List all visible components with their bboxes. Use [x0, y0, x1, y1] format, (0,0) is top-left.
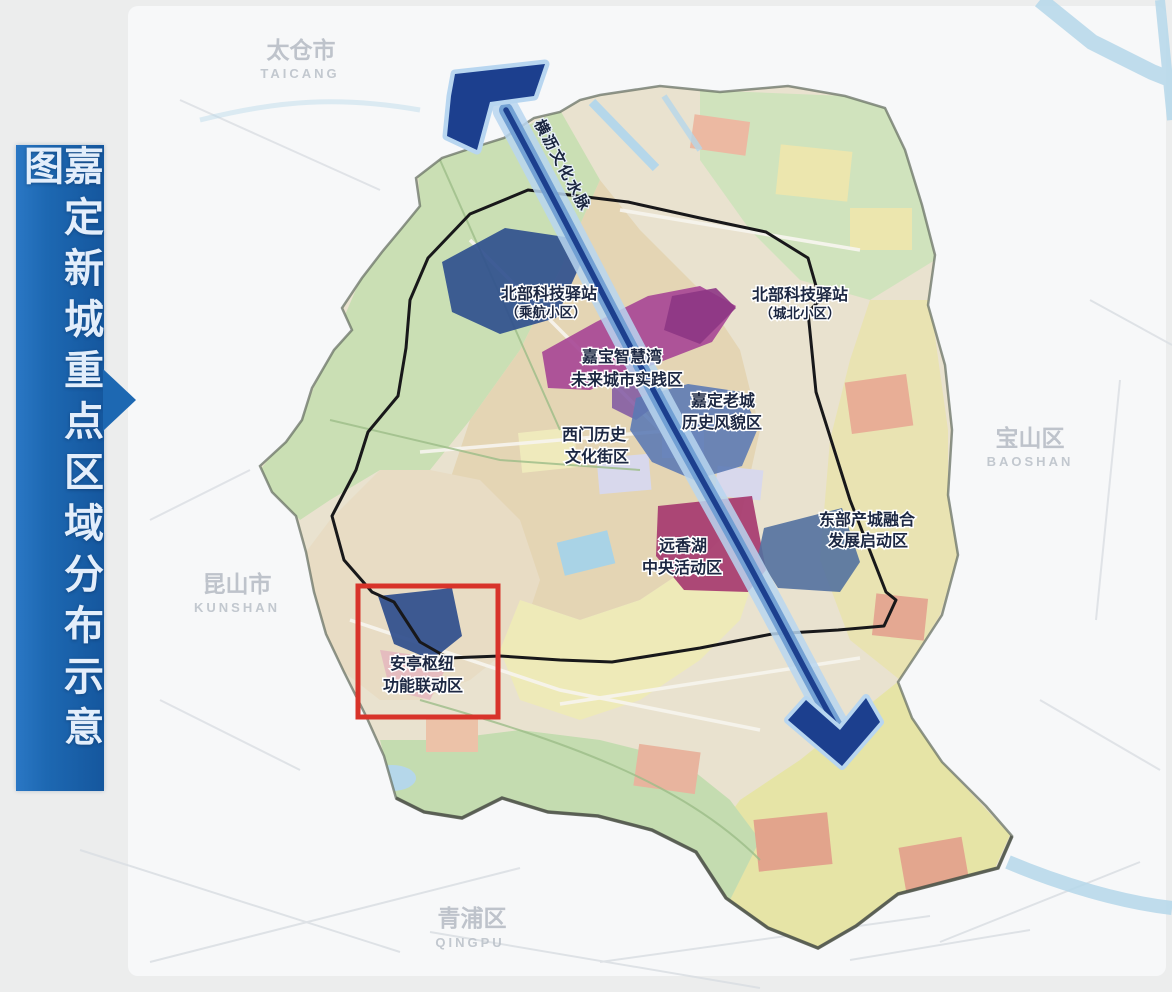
patch-salmon: [845, 374, 914, 434]
map-canvas: 横沥文化水脉 北部科技驿站 （乘航小区） 北部科技驿站 （城北小区） 嘉宝智慧湾…: [0, 0, 1172, 992]
page: 横沥文化水脉 北部科技驿站 （乘航小区） 北部科技驿站 （城北小区） 嘉宝智慧湾…: [0, 0, 1172, 992]
neighbor-label-qingpu-en: QINGPU: [435, 935, 504, 950]
zone-label-north-tech-east-line1: 北部科技驿站: [752, 285, 848, 304]
zone-label-old-town-line2: 历史风貌区: [682, 413, 762, 432]
neighbor-label-taicang-en: TAICANG: [260, 66, 339, 81]
neighbor-label-baoshan-en: BAOSHAN: [987, 454, 1074, 469]
zone-label-eastern-line2: 发展启动区: [827, 531, 908, 550]
zone-label-north-tech-west-line2: （乘航小区）: [506, 304, 587, 320]
neighbor-label-baoshan-zh: 宝山区: [996, 425, 1065, 451]
neighbor-label-kunshan-zh: 昆山市: [203, 571, 272, 597]
neighbor-label-kunshan-en: KUNSHAN: [194, 600, 280, 615]
road-line: [80, 850, 400, 952]
patch-salmon: [872, 593, 928, 640]
zone-label-jiabao-line1: 嘉宝智慧湾: [581, 347, 662, 366]
title-banner: 嘉定新城重点区域分布示意图: [16, 145, 104, 791]
patch-salmon: [633, 744, 700, 794]
river: [1160, 0, 1172, 120]
road-line: [1096, 380, 1120, 620]
patch-yellow: [776, 144, 853, 201]
road-line: [160, 700, 300, 770]
patch-salmon: [426, 716, 478, 752]
river: [1008, 862, 1172, 908]
zone-label-yuanxiang-line1: 远香湖: [659, 537, 707, 555]
road-line: [850, 930, 1030, 960]
road-line: [150, 470, 250, 520]
zone-label-north-tech-east-line2: （城北小区）: [760, 305, 841, 321]
zone-label-ximen-line2: 文化街区: [565, 447, 629, 466]
neighbor-label-qingpu-zh: 青浦区: [438, 905, 507, 931]
page-title: 嘉定新城重点区域分布示意图: [20, 145, 100, 791]
zone-label-eastern-line1: 东部产城融合: [819, 510, 916, 529]
zone-label-jiabao-line2: 未来城市实践区: [570, 370, 683, 389]
neighbor-label-taicang-zh: 太仓市: [267, 37, 336, 63]
banner-arrow-pointer: [103, 369, 136, 431]
zone-label-yuanxiang-line2: 中央活动区: [642, 558, 722, 577]
zone-label-anting-line1: 安亭枢纽: [390, 654, 454, 673]
zone-label-ximen-line1: 西门历史: [562, 425, 627, 444]
zone-label-old-town-line1: 嘉定老城: [690, 391, 755, 410]
river: [1040, 0, 1172, 80]
road-line: [1090, 300, 1172, 345]
patch-salmon: [753, 812, 832, 871]
road-line: [180, 100, 380, 190]
zone-label-anting-line2: 功能联动区: [383, 676, 463, 695]
patch-yellow: [850, 208, 912, 250]
road-line: [1040, 700, 1160, 770]
stream: [200, 102, 420, 120]
zone-label-north-tech-west-line1: 北部科技驿站: [501, 284, 597, 303]
